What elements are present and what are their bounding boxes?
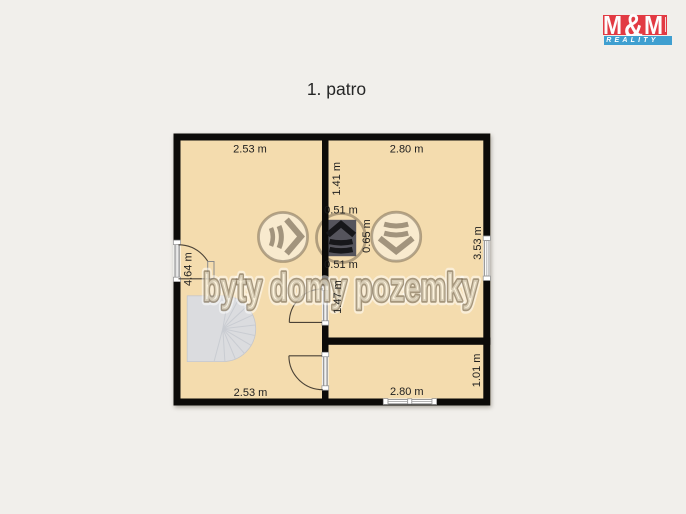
- svg-text:1.01 m: 1.01 m: [471, 354, 483, 388]
- svg-text:2.80 m: 2.80 m: [390, 143, 424, 155]
- svg-text:0.51 m: 0.51 m: [324, 259, 358, 271]
- svg-text:2.53 m: 2.53 m: [233, 143, 267, 155]
- svg-text:0.51 m: 0.51 m: [324, 204, 358, 216]
- svg-text:2.53 m: 2.53 m: [234, 387, 268, 399]
- svg-text:2.80 m: 2.80 m: [390, 386, 424, 398]
- svg-text:1.41 m: 1.41 m: [331, 162, 343, 196]
- svg-text:0.65 m: 0.65 m: [361, 219, 373, 253]
- svg-text:1.47 m: 1.47 m: [332, 280, 344, 314]
- svg-text:4.64 m: 4.64 m: [182, 252, 194, 286]
- svg-text:3.53 m: 3.53 m: [472, 226, 484, 260]
